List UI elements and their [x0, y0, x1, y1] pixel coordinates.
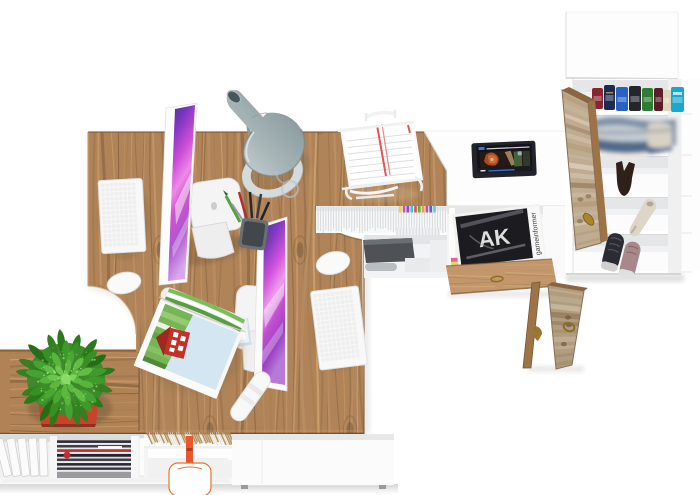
svg-text:AK: AK [477, 224, 512, 253]
